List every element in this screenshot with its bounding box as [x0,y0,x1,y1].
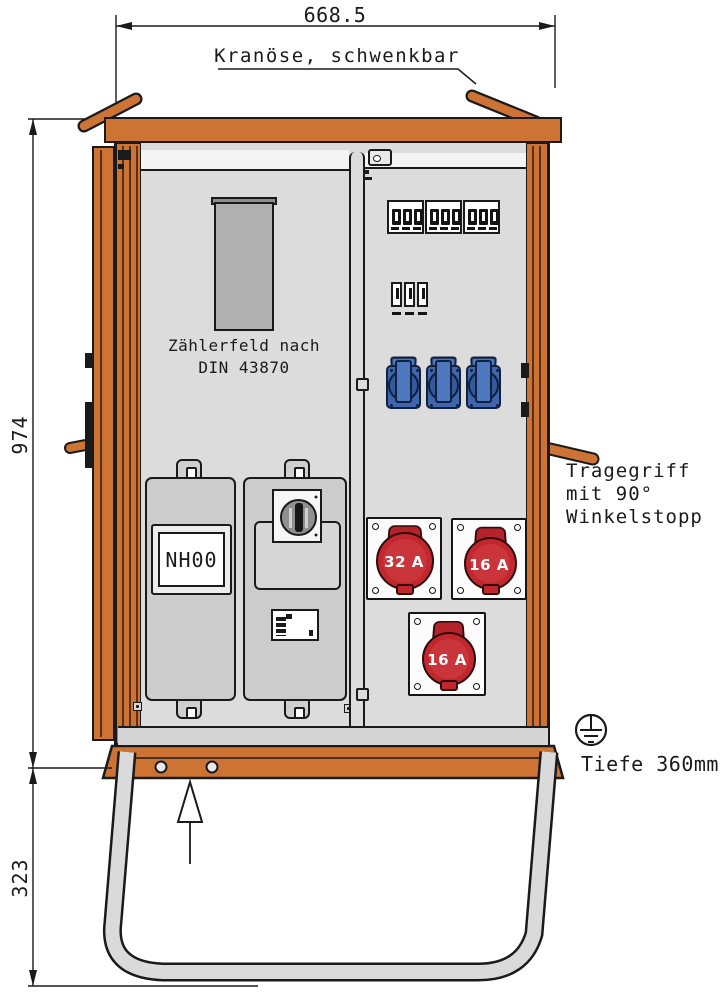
latch-detail [363,170,369,174]
right-door-edge [526,143,548,744]
schuko-socket [466,357,501,409]
meter-window [214,202,274,331]
crane-note: Kranöse, schwenkbar [200,45,474,67]
nh-label: NH00 [158,532,225,587]
handle-icon [550,449,593,459]
door-latch-detail [118,150,131,160]
rail-hole [156,762,167,773]
cee-socket-16a: 16 A [408,612,486,696]
mount-tab [176,459,202,479]
right-hinge [521,363,529,378]
cee-rating-label: 16 A [453,556,525,574]
technical-drawing-canvas: Zählerfeld nach DIN 43870 NH00 [0,0,726,1000]
mcb-group [425,200,462,234]
earth-symbol-icon [576,715,606,745]
mount-tab [284,699,310,719]
divider-clip [356,688,369,701]
aux-device [271,609,319,641]
meter-field-label-line2: DIN 43870 [141,358,347,377]
cabinet-roof [104,117,562,143]
aux-breaker [391,282,431,315]
divider-clip [356,378,369,391]
leader-line [218,69,476,84]
door-latch-detail [118,164,124,169]
left-panel-top-rail [141,150,349,171]
rail-hole [207,762,218,773]
cee-socket-16a: 16 A [451,518,527,600]
dim-stand-label: 323 [8,848,32,908]
depth-note: Tiefe 360mm [581,752,719,776]
handle-note-line3: Winkelstopp [566,506,703,528]
handle-note-line2: mit 90° [566,483,653,505]
interior-bottom-strip [118,726,548,745]
dim-height-label: 974 [8,405,32,465]
schuko-socket [386,357,421,409]
stand-tube [112,752,549,972]
dim-width-label: 668.5 [298,3,372,27]
cee-socket-32a: 32 A [366,517,442,600]
mcb-group [387,200,424,234]
mount-tab [284,459,310,479]
meter-field-label-line1: Zählerfeld nach [141,336,347,355]
corner-screw [133,702,142,711]
mcb-group [463,200,500,234]
cee-rating-label: 32 A [368,553,440,571]
right-hinge [521,402,529,417]
bottom-rail [103,746,563,778]
rotary-knob-icon [280,499,317,536]
latch-detail [363,177,372,180]
up-arrow-icon [178,782,202,864]
nh-label-text: NH00 [165,548,217,572]
door-latch [368,149,392,166]
schuko-socket [426,357,461,409]
left-door-edge [92,146,115,741]
left-hinge [85,402,93,468]
left-door-fold [116,143,141,744]
dimension-stand-height [28,768,258,986]
mount-tab [176,699,202,719]
cee-rating-label: 16 A [410,651,484,669]
inner-door-divider [349,152,365,736]
handle-note-line1: Tragegriff [566,460,690,482]
left-hinge [85,353,93,368]
main-switch [272,489,322,543]
